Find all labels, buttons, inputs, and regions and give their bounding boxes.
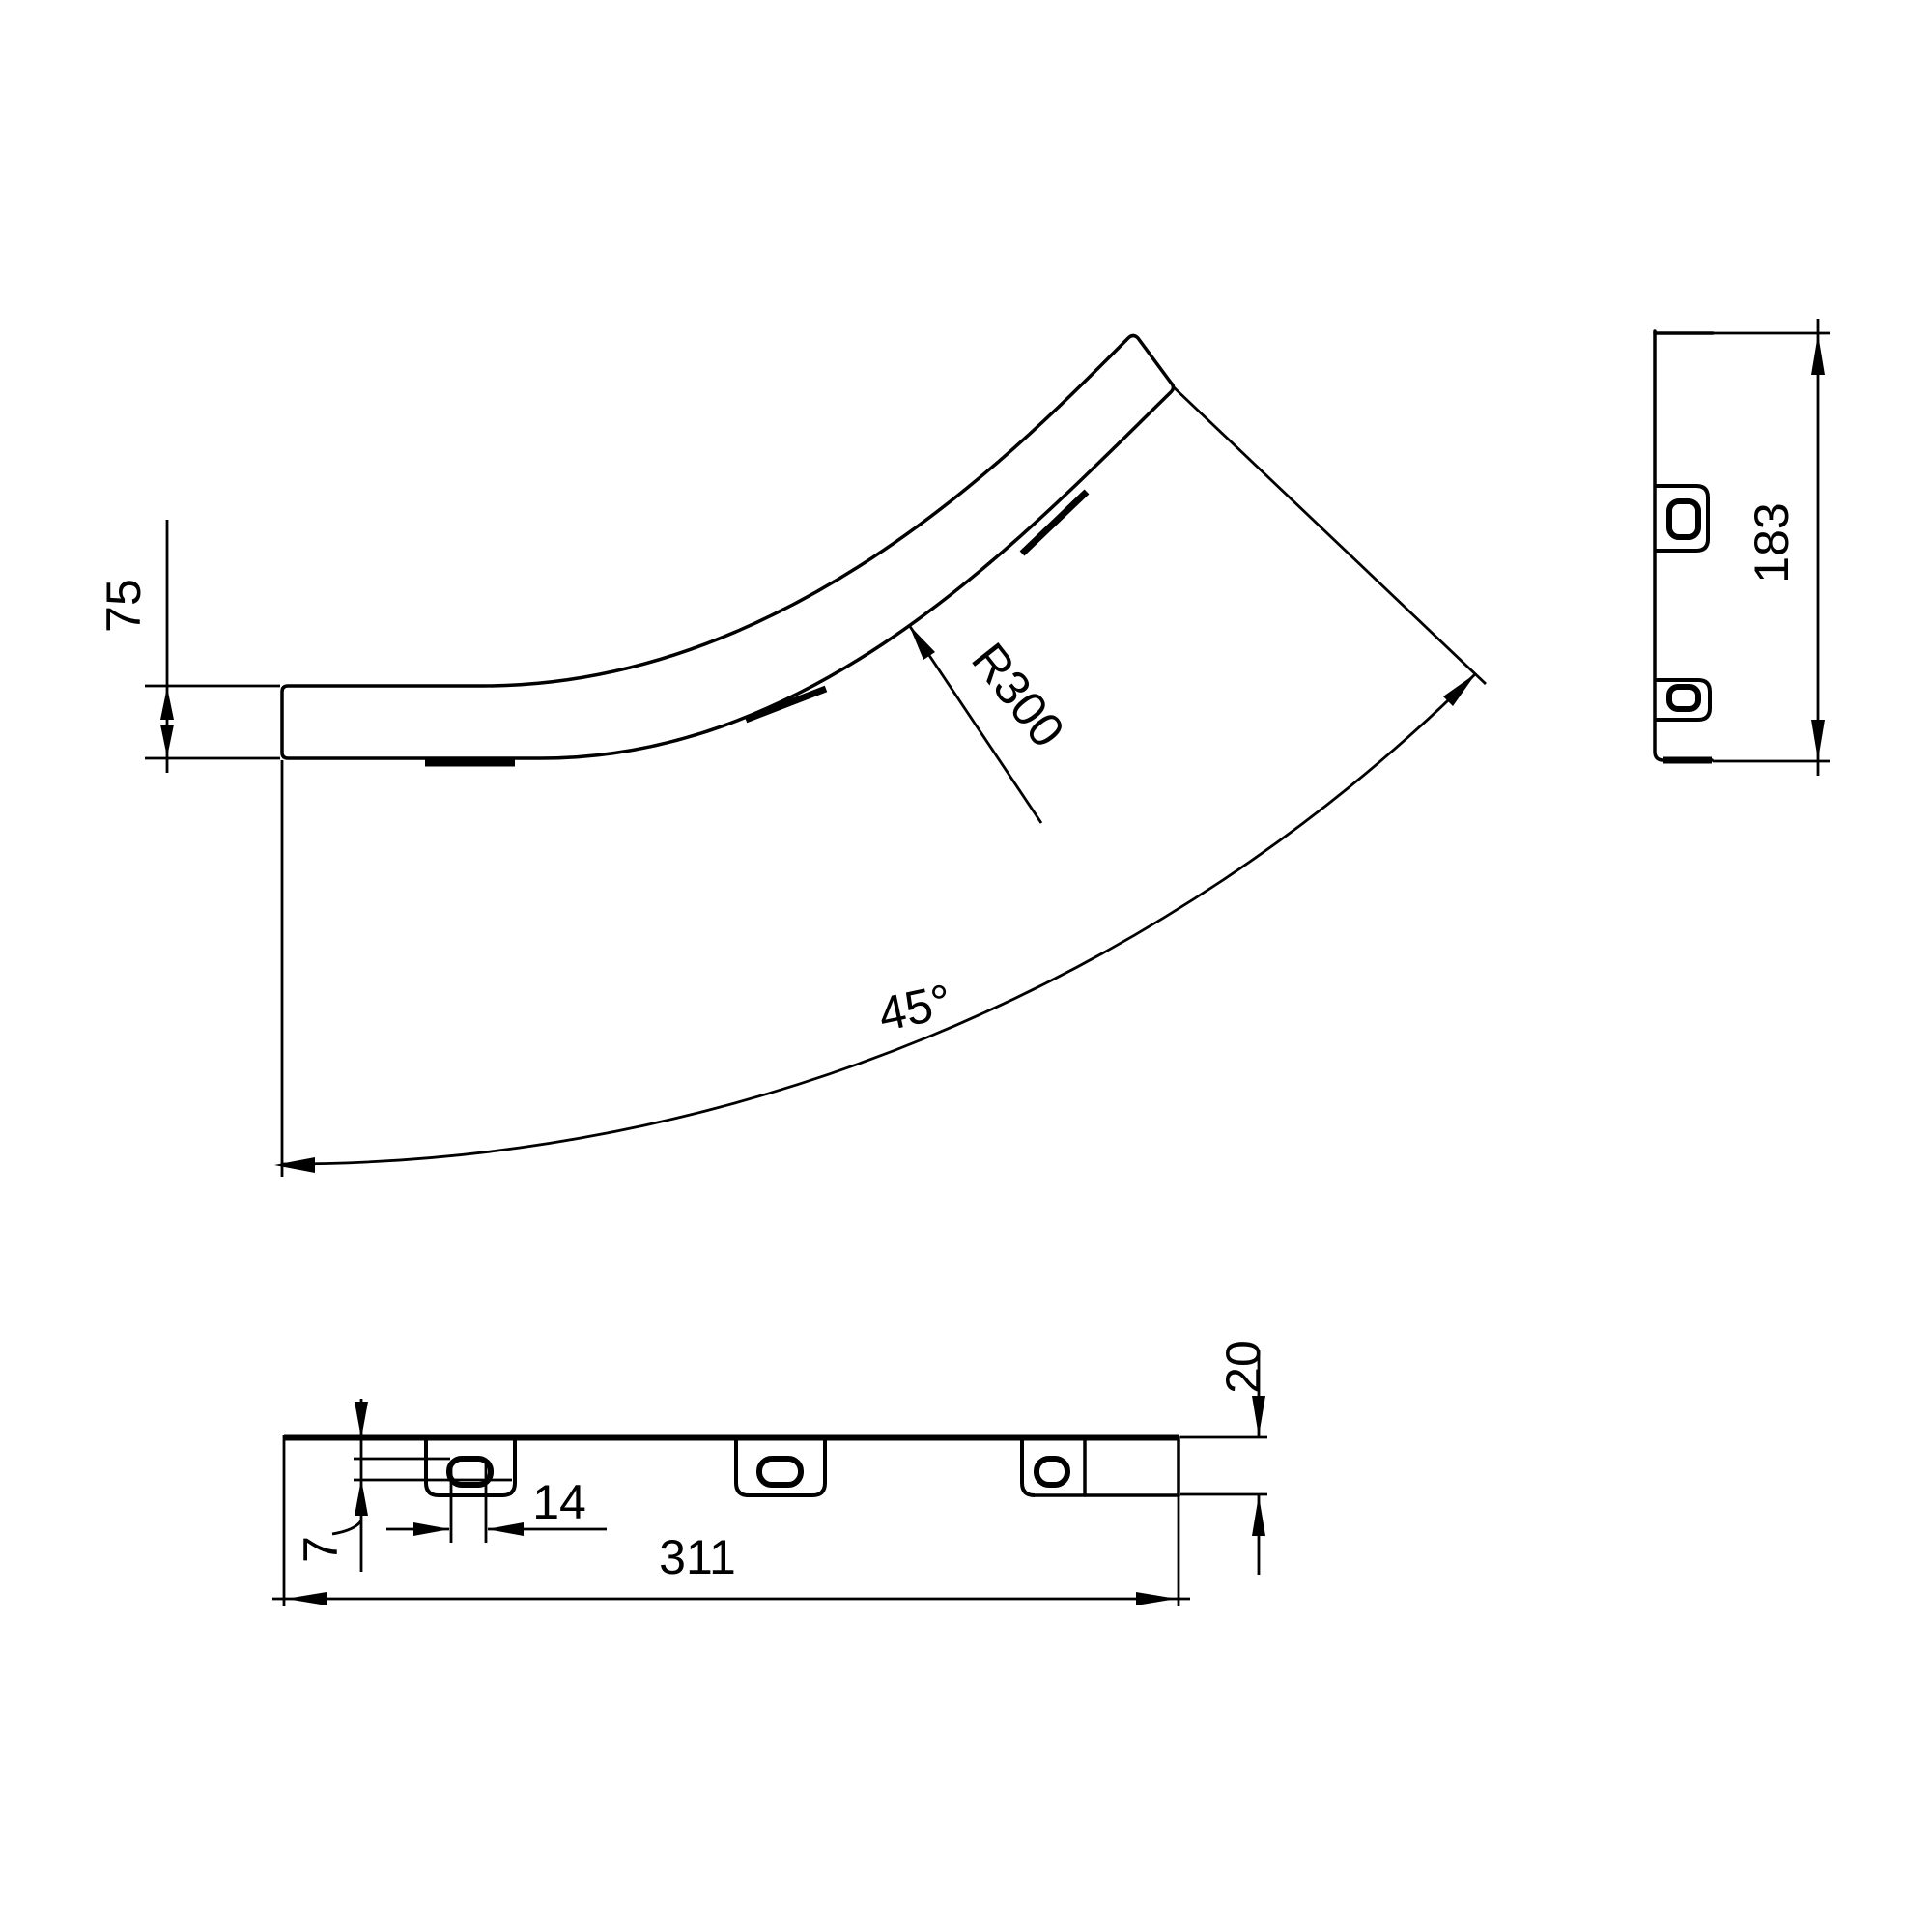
leader-7 (332, 1520, 361, 1534)
arrowhead-183-down (1811, 720, 1825, 760)
dimension-14: 14 (386, 1463, 607, 1543)
arrowhead-20-up (1252, 1495, 1265, 1536)
dimension-45deg: 45° (274, 386, 1486, 1177)
arrowhead-r300 (909, 625, 935, 660)
flange-slot-hole-2 (759, 1459, 801, 1485)
dim-label-75: 75 (97, 579, 151, 633)
dimension-183: 183 (1713, 319, 1830, 776)
arrowhead-7-up (355, 1479, 368, 1516)
arrowhead-45-left (274, 1157, 315, 1173)
arrowhead-183-up (1811, 334, 1825, 375)
bottom-view: 7 14 311 20 (272, 1340, 1270, 1606)
arrowhead-14-left (487, 1522, 524, 1536)
cad-drawing-canvas: 75 45° R300 (0, 0, 1932, 1932)
dim-arc-45 (282, 673, 1476, 1164)
dimension-75: 75 (97, 520, 280, 773)
dim-label-7: 7 (294, 1536, 348, 1563)
flange-slot-hole-3 (1037, 1459, 1067, 1485)
main-view: 75 45° R300 (97, 336, 1486, 1178)
arrowhead-311-left (286, 1592, 327, 1605)
dimension-311: 311 (272, 1530, 1190, 1605)
dim-label-14: 14 (532, 1475, 586, 1529)
side-slot-hole-lower (1669, 687, 1698, 709)
latch-mark-middle (746, 689, 826, 720)
arrowhead-7-down (355, 1402, 368, 1438)
ext-line-45-right (1173, 386, 1486, 684)
dim-label-183: 183 (1745, 502, 1799, 582)
cad-drawing-page: 75 45° R300 (0, 0, 1932, 1932)
dimension-r300: R300 (909, 625, 1075, 823)
arrowhead-75-down (160, 724, 174, 757)
dim-label-20: 20 (1216, 1340, 1270, 1394)
side-slot-hole-upper (1669, 501, 1698, 537)
dim-label-r300: R300 (961, 633, 1075, 757)
arrowhead-75-up (160, 687, 174, 720)
arrowhead-311-right (1136, 1592, 1177, 1605)
flange-tab-3 (1022, 1440, 1035, 1495)
arrowhead-20-down (1252, 1396, 1265, 1436)
dim-label-311: 311 (659, 1530, 736, 1584)
arrowhead-45-right (1443, 673, 1476, 706)
dimension-20: 20 (1180, 1340, 1270, 1575)
arrowhead-14-right (413, 1522, 450, 1536)
side-view: 183 (1655, 319, 1830, 776)
latch-mark-right (1022, 492, 1087, 554)
side-view-left-edge (1655, 331, 1712, 760)
